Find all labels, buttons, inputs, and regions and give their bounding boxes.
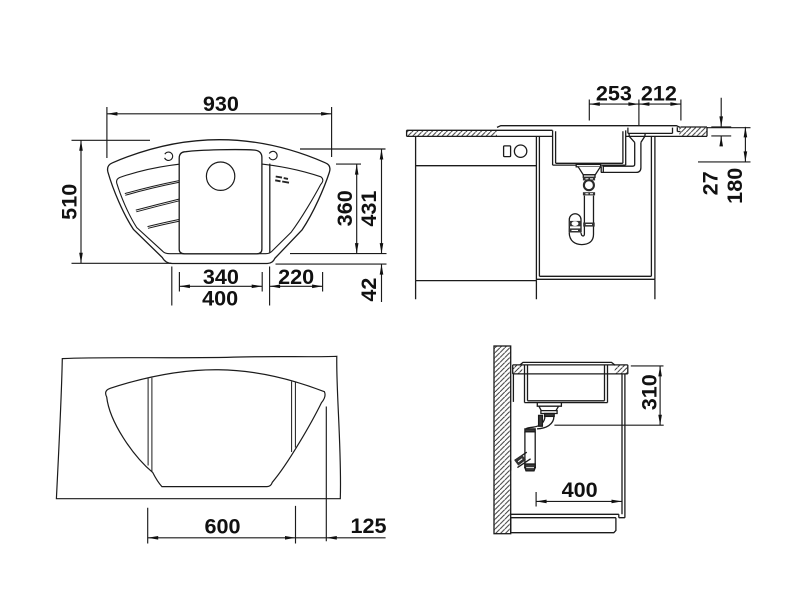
svg-text:220: 220: [278, 264, 314, 289]
svg-text:930: 930: [203, 91, 239, 116]
svg-text:510: 510: [57, 184, 82, 220]
svg-text:310: 310: [636, 374, 661, 410]
svg-text:212: 212: [641, 81, 677, 106]
svg-text:42: 42: [356, 278, 381, 302]
svg-text:431: 431: [356, 191, 381, 227]
svg-text:400: 400: [562, 477, 598, 502]
svg-text:360: 360: [332, 190, 357, 226]
svg-text:400: 400: [202, 285, 238, 310]
svg-text:27: 27: [698, 171, 723, 195]
svg-text:180: 180: [722, 168, 747, 204]
svg-text:253: 253: [596, 81, 632, 106]
svg-text:600: 600: [204, 514, 240, 539]
svg-text:125: 125: [350, 513, 386, 538]
